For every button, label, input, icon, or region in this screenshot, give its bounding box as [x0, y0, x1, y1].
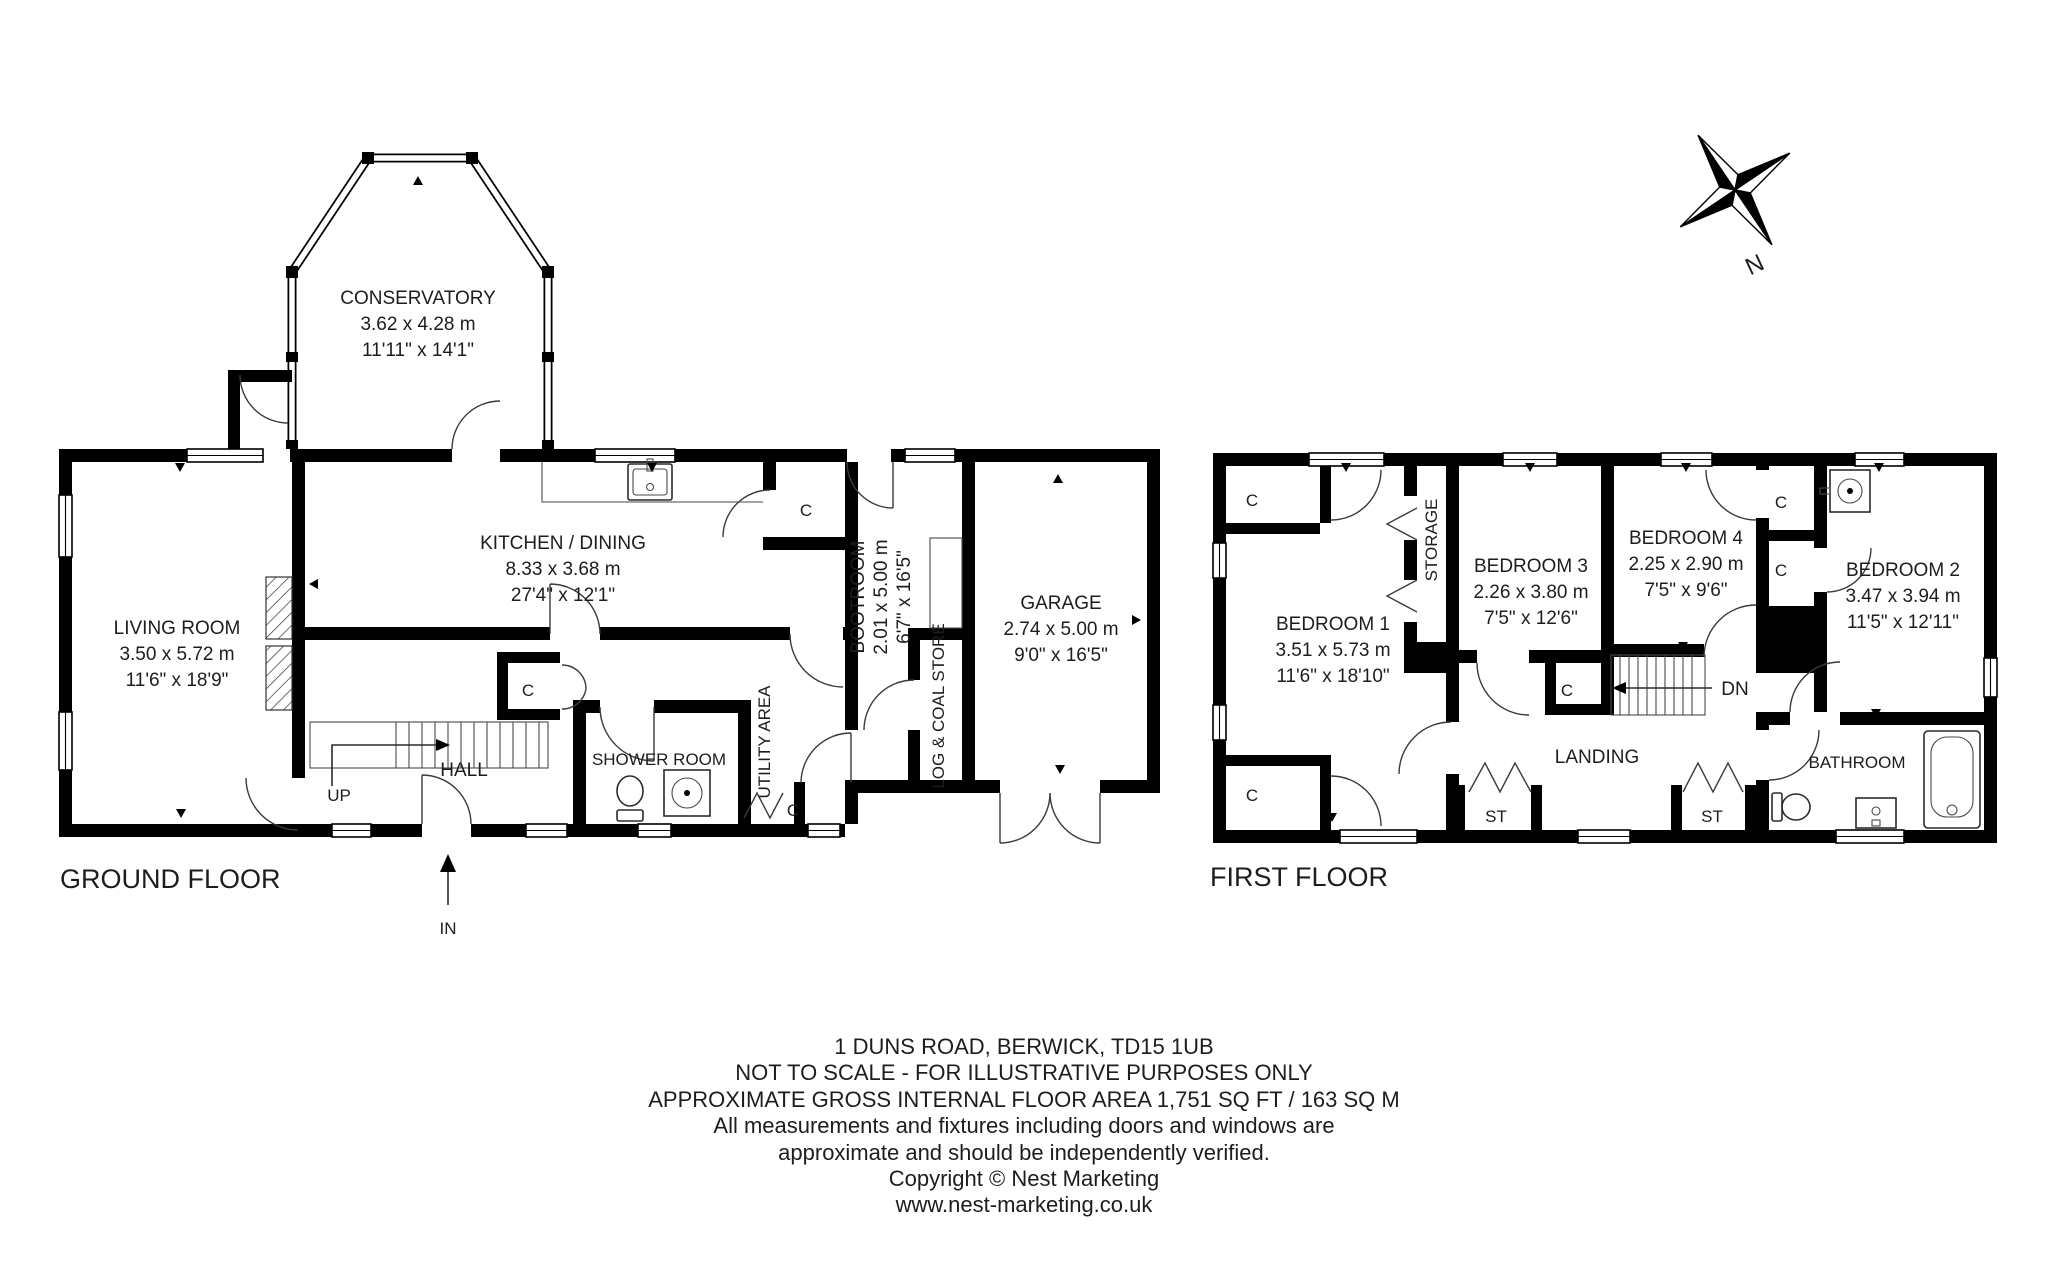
room-label-storage: STORAGE	[1422, 499, 1441, 582]
stairs-up-label: UP	[327, 786, 351, 805]
store-label: ST	[1485, 807, 1507, 826]
room-dims-living-ft: 11'6" x 18'9"	[126, 670, 229, 691]
compass-north-label: N	[1741, 249, 1768, 281]
room-dims-bedroom-4-ft: 7'5" x 9'6"	[1644, 580, 1727, 601]
north-compass-icon: N	[1643, 98, 1826, 281]
footer-not-to-scale: NOT TO SCALE - FOR ILLUSTRATIVE PURPOSES…	[0, 1060, 2048, 1086]
room-label-living-room: LIVING ROOM	[114, 618, 241, 639]
cupboard-label: C	[1561, 681, 1573, 700]
room-dims-bedroom-3-m: 2.26 x 3.80 m	[1473, 582, 1588, 603]
room-label-landing: LANDING	[1555, 747, 1639, 768]
room-dims-garage-m: 2.74 x 5.00 m	[1003, 619, 1118, 640]
entrance-in-label: IN	[440, 919, 457, 938]
room-dims-kitchen-m: 8.33 x 3.68 m	[505, 559, 620, 580]
cupboard-label: C	[800, 501, 812, 520]
stairs-dn-label: DN	[1721, 679, 1748, 700]
first-floor-title: FIRST FLOOR	[1210, 862, 1388, 892]
room-label-garage: GARAGE	[1020, 593, 1101, 614]
cupboard-label: C	[522, 681, 534, 700]
room-dims-bootroom-ft: 6'7" x 16'5"	[894, 550, 915, 644]
bathroom-sink-icon	[1856, 798, 1896, 828]
room-dims-bootroom-m: 2.01 x 5.00 m	[871, 539, 892, 654]
room-label-log-coal-store: LOG & COAL STORE	[929, 623, 948, 788]
room-label-conservatory: CONSERVATORY	[340, 288, 496, 309]
washing-machine-icon	[664, 770, 710, 816]
footer-floor-area: APPROXIMATE GROSS INTERNAL FLOOR AREA 1,…	[0, 1087, 2048, 1113]
room-label-kitchen-dining: KITCHEN / DINING	[480, 533, 646, 554]
room-label-shower-room: SHOWER ROOM	[592, 750, 726, 769]
room-dims-bedroom-3-ft: 7'5" x 12'6"	[1484, 608, 1578, 629]
chimney-breast	[266, 577, 292, 710]
room-dims-bedroom-4-m: 2.25 x 2.90 m	[1628, 554, 1743, 575]
room-dims-living-m: 3.50 x 5.72 m	[119, 644, 234, 665]
room-dims-conservatory-m: 3.62 x 4.28 m	[360, 314, 475, 335]
first-stairs	[1611, 655, 1712, 715]
cupboard-label: C	[1775, 493, 1787, 512]
ground-floor-title: GROUND FLOOR	[60, 864, 281, 894]
store-label: ST	[1701, 807, 1723, 826]
bedroom2-sink-icon	[1820, 470, 1870, 512]
room-label-bootroom: BOOTROOM	[848, 541, 869, 654]
room-label-bedroom-2: BEDROOM 2	[1846, 560, 1960, 581]
ground-stairs	[310, 722, 548, 786]
footer-disclaimer-line-2: approximate and should be independently …	[0, 1140, 2048, 1166]
footer-address: 1 DUNS ROAD, BERWICK, TD15 1UB	[0, 1034, 2048, 1060]
footer-disclaimer-line-1: All measurements and fixtures including …	[0, 1113, 2048, 1139]
cupboard-label: C	[1246, 786, 1258, 805]
entrance-arrow	[440, 854, 456, 905]
shower-room-toilet-icon	[617, 776, 643, 821]
first-floor-plan: BEDROOM 1 3.51 x 5.73 m 11'6" x 18'10" B…	[1210, 453, 1997, 892]
cupboard-label: C	[787, 801, 799, 820]
cupboard-label: C	[1775, 561, 1787, 580]
room-dims-garage-ft: 9'0" x 16'5"	[1014, 645, 1108, 666]
room-dims-kitchen-ft: 27'4" x 12'1"	[511, 585, 615, 606]
room-dims-bedroom-1-ft: 11'6" x 18'10"	[1276, 666, 1389, 687]
room-label-hall: HALL	[440, 760, 488, 781]
cupboard-label: C	[1246, 491, 1258, 510]
room-label-bedroom-4: BEDROOM 4	[1629, 528, 1743, 549]
room-dims-bedroom-2-m: 3.47 x 3.94 m	[1845, 586, 1960, 607]
room-label-bedroom-3: BEDROOM 3	[1474, 556, 1588, 577]
footer-copyright: Copyright © Nest Marketing	[0, 1166, 2048, 1192]
room-dims-conservatory-ft: 11'11" x 14'1"	[362, 340, 474, 361]
room-dims-bedroom-1-m: 3.51 x 5.73 m	[1275, 640, 1390, 661]
room-dims-bedroom-2-ft: 11'5" x 12'11"	[1847, 612, 1959, 633]
bathroom-toilet-icon	[1772, 793, 1810, 821]
room-label-bedroom-1: BEDROOM 1	[1276, 614, 1390, 635]
footer-disclaimer: 1 DUNS ROAD, BERWICK, TD15 1UB NOT TO SC…	[0, 1034, 2048, 1219]
floorplan-page: CONSERVATORY 3.62 x 4.28 m 11'11" x 14'1…	[0, 0, 2048, 1279]
room-label-bathroom: BATHROOM	[1809, 753, 1906, 772]
ground-windows	[59, 449, 955, 837]
room-label-utility-area: UTILITY AREA	[755, 685, 774, 799]
footer-website: www.nest-marketing.co.uk	[0, 1192, 2048, 1218]
bathtub-icon	[1924, 731, 1980, 828]
ground-floor-plan: CONSERVATORY 3.62 x 4.28 m 11'11" x 14'1…	[59, 152, 1160, 938]
